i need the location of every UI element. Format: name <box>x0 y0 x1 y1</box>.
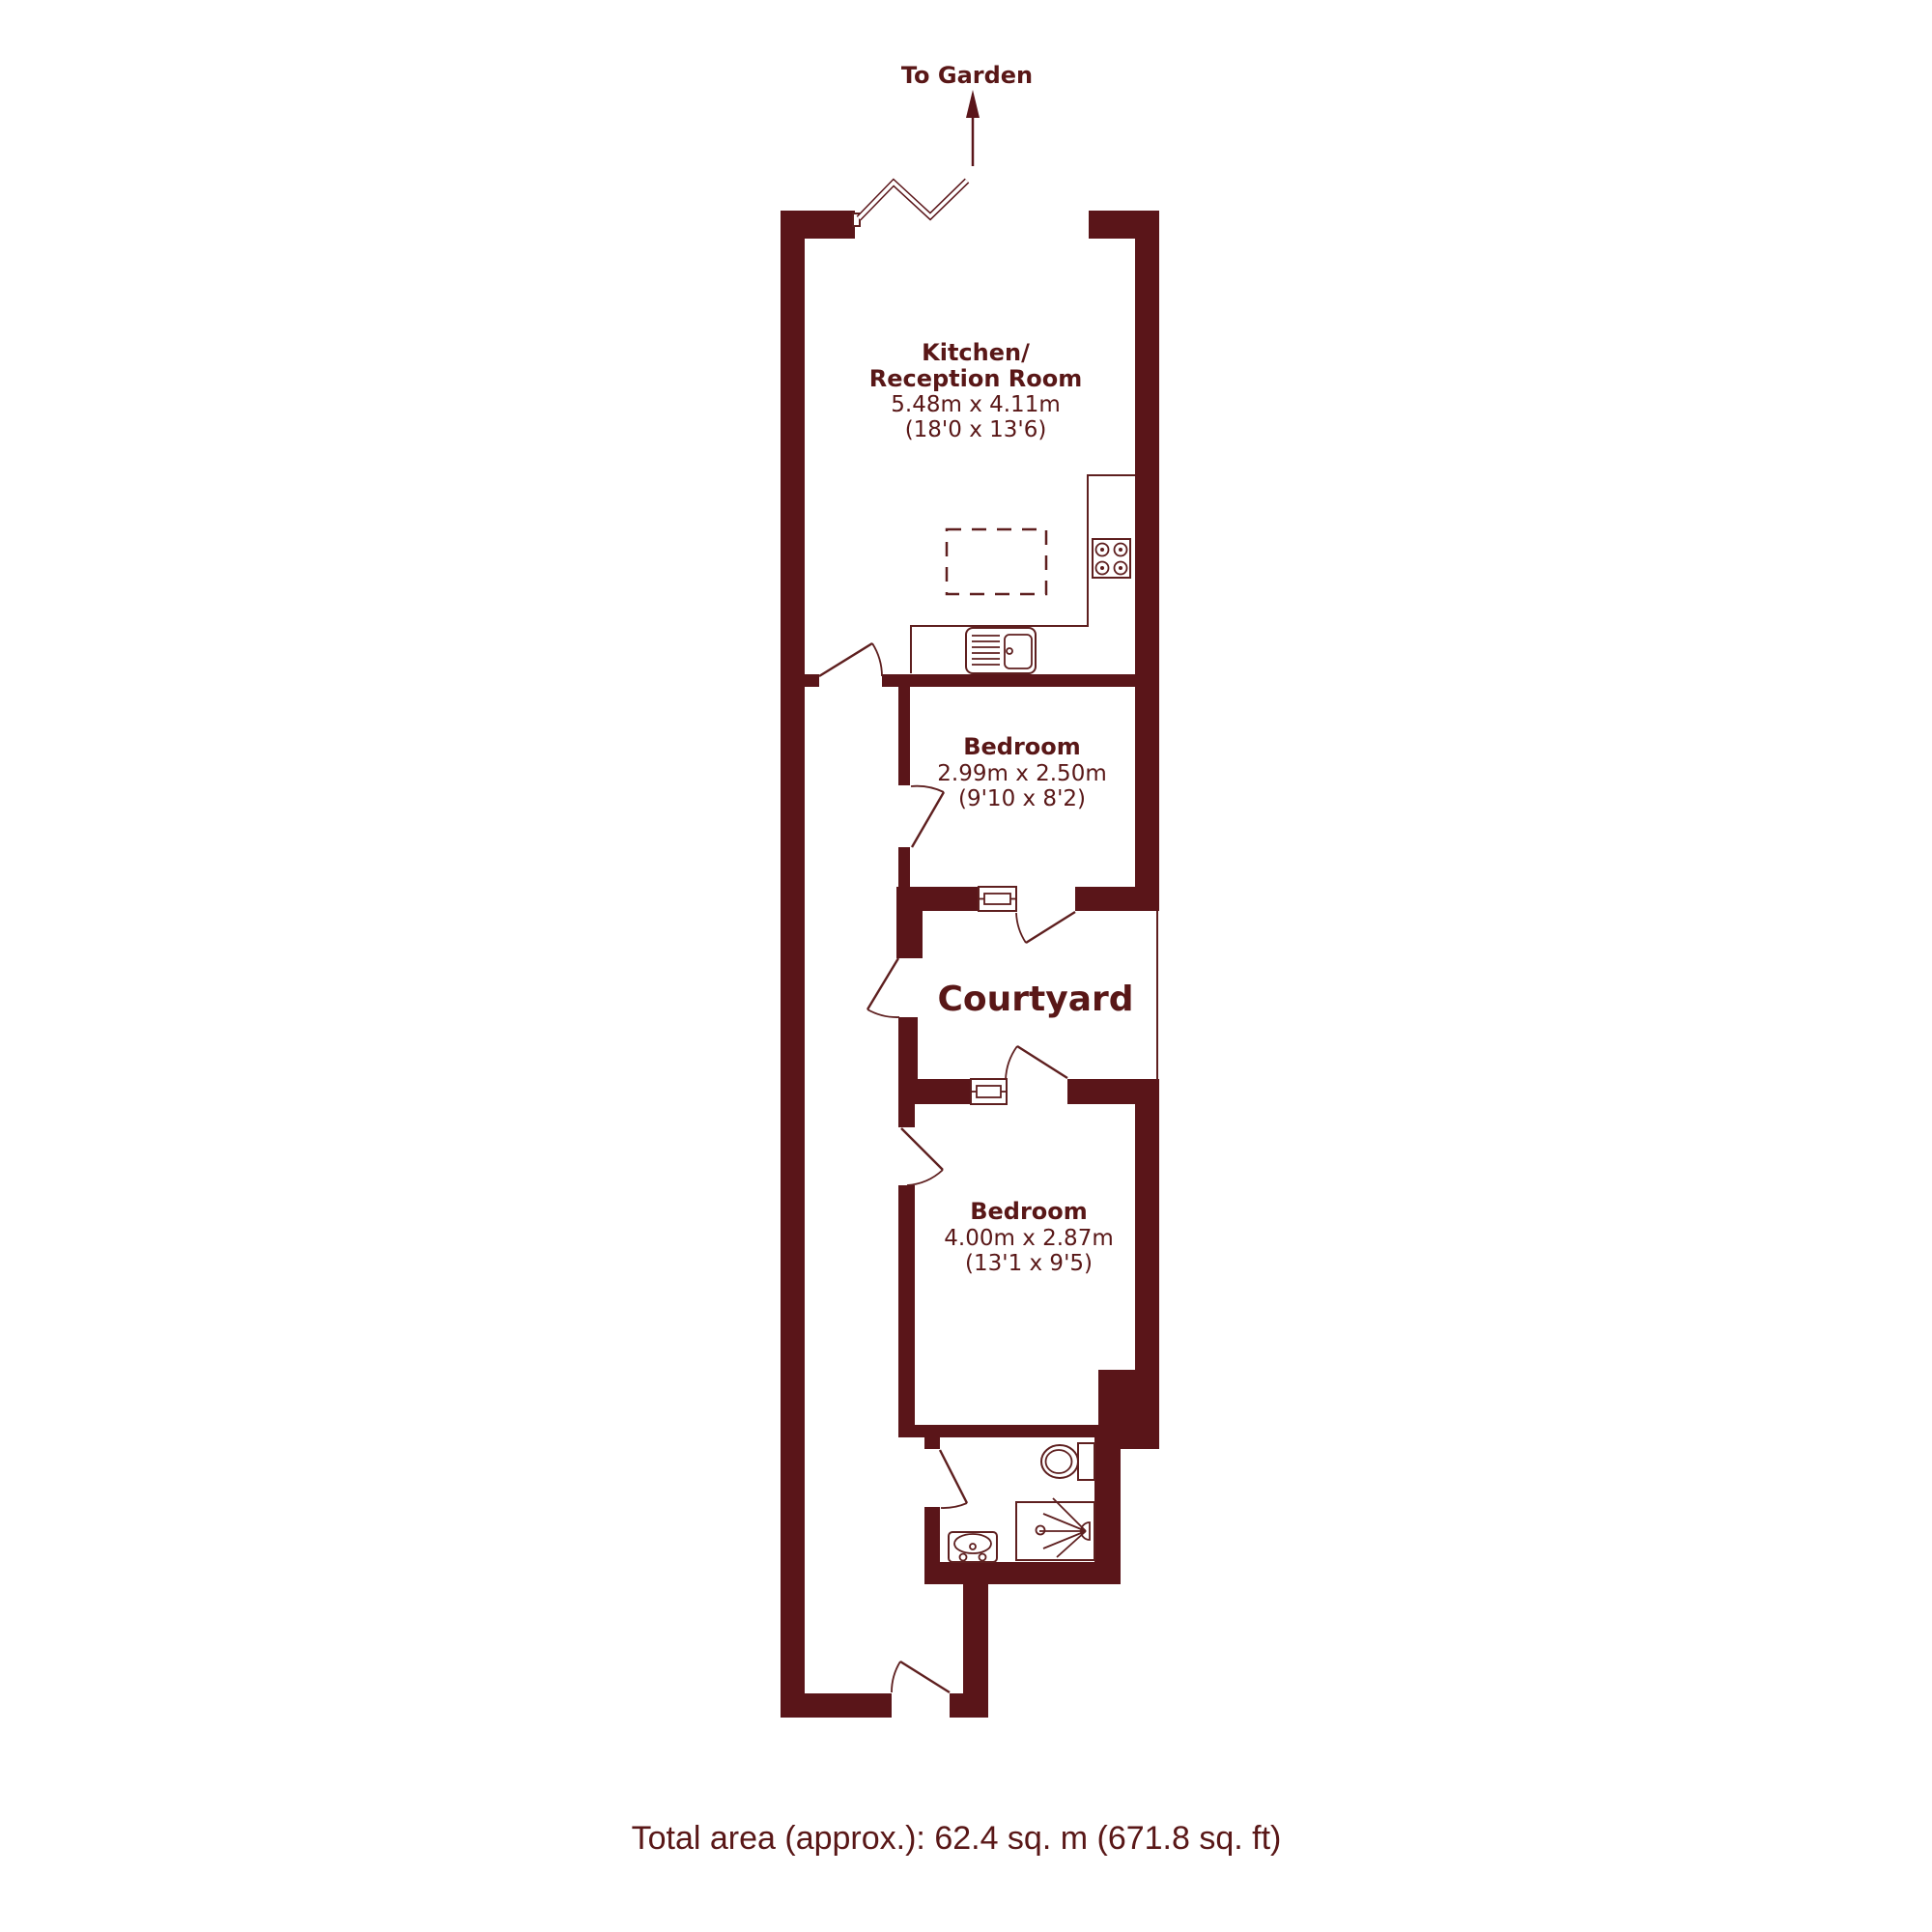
wall-chimney-block <box>1098 1370 1137 1428</box>
wall-right-mid <box>1135 1101 1159 1449</box>
kitchen-name-line2: Reception Room <box>869 365 1083 392</box>
toilet-icon <box>1041 1443 1094 1480</box>
hob-icon <box>1093 539 1130 578</box>
door-bedroom1 <box>911 786 944 847</box>
bedroom1-name: Bedroom <box>963 733 1081 760</box>
wall-courtyard-left-upper <box>896 887 923 958</box>
bedroom2-label: Bedroom 4.00m x 2.87m (13'1 x 9'5) <box>944 1198 1113 1276</box>
total-area-label: Total area (approx.): 62.4 sq. m (671.8 … <box>632 1820 1282 1857</box>
wall-right-stepin <box>1094 1427 1159 1449</box>
dining-table <box>947 529 1046 594</box>
wall-bedroom2-left-a <box>898 1104 915 1127</box>
garden-arrow-icon <box>966 90 980 166</box>
wall-bathroom-bottom <box>924 1562 1121 1584</box>
door-front-entrance <box>892 1662 950 1692</box>
wall-bedroom1-left-a <box>898 687 910 785</box>
door-courtyard-hall <box>867 958 899 1017</box>
door-bedroom2 <box>901 1128 943 1185</box>
door-courtyard-top <box>1016 912 1075 943</box>
door-bathroom <box>940 1450 967 1508</box>
courtyard-label: Courtyard <box>937 980 1133 1019</box>
floorplan-page: To Garden Kitchen/ Reception Room 5.48m … <box>0 0 1932 1932</box>
wall-bottom-left <box>781 1693 892 1718</box>
wall-left <box>781 211 805 1718</box>
bedroom2-dim-imperial: (13'1 x 9'5) <box>965 1251 1093 1276</box>
wall-courtyard-top-right <box>1075 887 1159 911</box>
wall-courtyard-left-lower <box>898 1017 918 1079</box>
shower-icon <box>1016 1498 1094 1560</box>
wall-kitchen-bottom <box>882 674 1135 687</box>
wall-courtyard-bottom-right <box>1067 1079 1159 1104</box>
to-garden-label: To Garden <box>901 62 1033 89</box>
bedroom1-dim-metric: 2.99m x 2.50m <box>937 761 1106 786</box>
wall-bathroom-left-lower <box>924 1507 940 1562</box>
bedroom2-name: Bedroom <box>970 1198 1088 1225</box>
basin-icon <box>949 1532 997 1562</box>
kitchen-dim-metric: 5.48m x 4.11m <box>891 392 1060 417</box>
courtyard-step-top-icon <box>979 887 1016 911</box>
kitchen-name-line1: Kitchen/ <box>922 339 1030 366</box>
wall-top-left <box>781 211 855 239</box>
kitchen-label: Kitchen/ Reception Room 5.48m x 4.11m (1… <box>869 339 1083 442</box>
courtyard-step-bottom-icon <box>971 1079 1007 1104</box>
kitchen-dim-imperial: (18'0 x 13'6) <box>905 417 1047 442</box>
floorplan-drawing: To Garden Kitchen/ Reception Room 5.48m … <box>0 0 1932 1932</box>
bedroom1-dim-imperial: (9'10 x 8'2) <box>958 786 1086 811</box>
wall-right-upper <box>1135 211 1159 911</box>
wall-bedroom2-left-b <box>898 1185 915 1425</box>
wall-kitchen-stub <box>805 674 819 687</box>
kitchen-sink-icon <box>966 628 1036 673</box>
wall-bottom-block <box>950 1693 988 1718</box>
wall-bedroom1-left-b <box>898 847 910 887</box>
door-courtyard-bottom <box>1006 1046 1067 1080</box>
wall-bathroom-left-stub <box>924 1435 940 1449</box>
bedroom2-dim-metric: 4.00m x 2.87m <box>944 1226 1113 1251</box>
door-kitchen <box>819 643 882 676</box>
bedroom1-label: Bedroom 2.99m x 2.50m (9'10 x 8'2) <box>937 733 1106 811</box>
garden-steps-zigzag-icon <box>859 181 967 218</box>
wall-courtyard-bottom-left <box>898 1079 971 1104</box>
